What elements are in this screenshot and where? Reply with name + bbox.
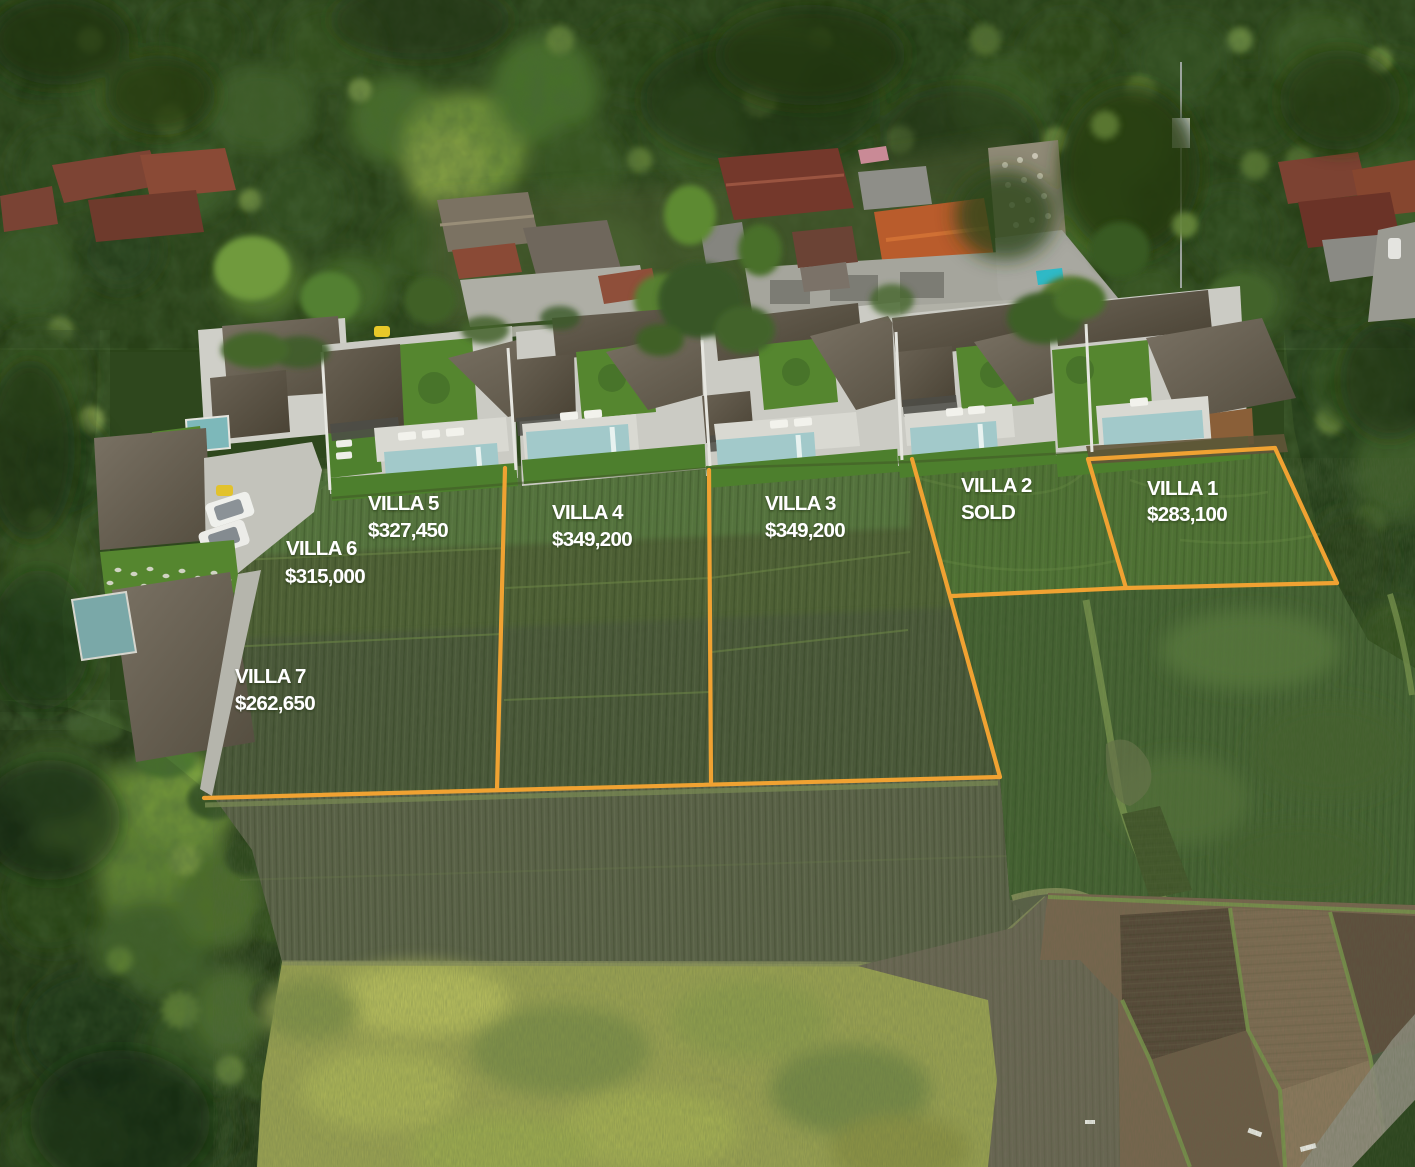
svg-text:$283,100: $283,100: [1147, 503, 1227, 526]
svg-text:VILLA 2: VILLA 2: [961, 474, 1032, 497]
svg-text:SOLD: SOLD: [961, 501, 1015, 524]
svg-text:$349,200: $349,200: [552, 528, 632, 551]
svg-text:$349,200: $349,200: [765, 519, 845, 542]
svg-text:$315,000: $315,000: [285, 565, 365, 588]
svg-text:VILLA 4: VILLA 4: [552, 501, 624, 524]
svg-text:$262,650: $262,650: [235, 692, 315, 715]
svg-text:VILLA 5: VILLA 5: [368, 492, 439, 515]
svg-text:VILLA 7: VILLA 7: [235, 665, 306, 688]
svg-text:VILLA 1: VILLA 1: [1147, 477, 1218, 500]
svg-text:VILLA 3: VILLA 3: [765, 492, 836, 515]
svg-text:$327,450: $327,450: [368, 519, 448, 542]
svg-text:VILLA 6: VILLA 6: [286, 537, 357, 560]
